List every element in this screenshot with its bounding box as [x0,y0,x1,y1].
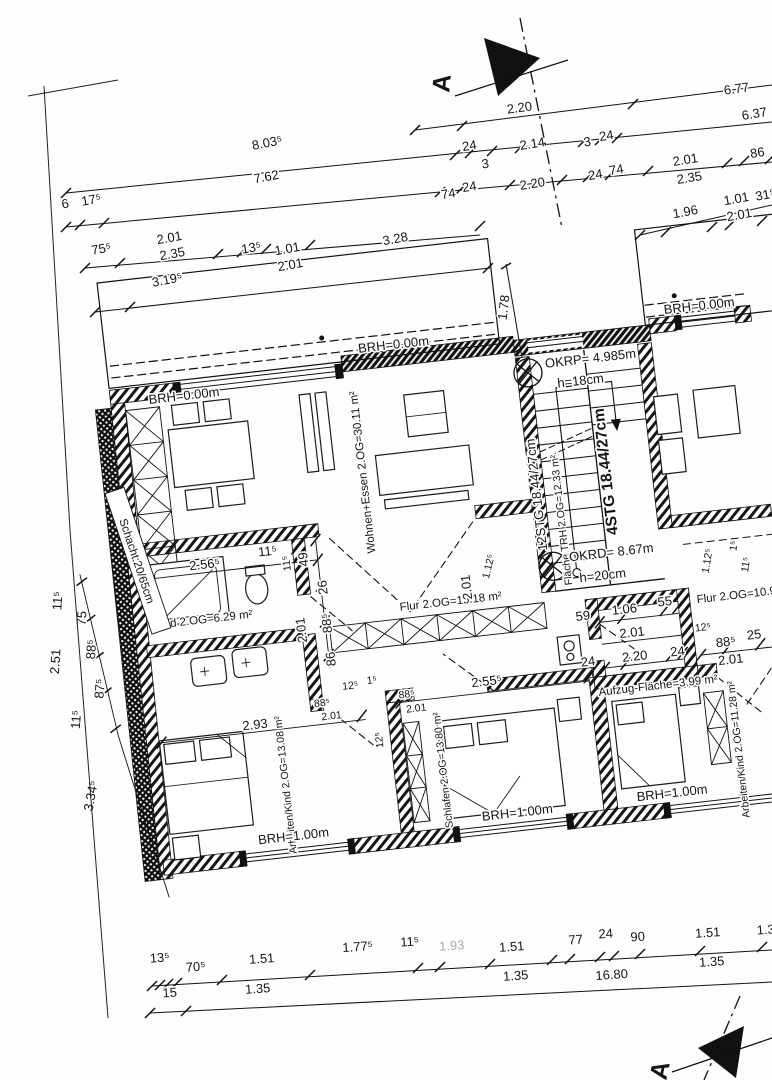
dim: 2.01 [457,574,475,601]
dim: 1.51 [695,924,721,941]
floorplan-drawing: Wohnen+Essen 2.OG=30.11 m² Bad 2.OG=6.29… [0,0,772,1080]
dim: 70⁵ [185,958,206,974]
dim: 90 [630,929,645,945]
dim: 2.01 [292,617,310,644]
dim: 6.37 [741,104,768,123]
dim: 3 [583,134,592,150]
room-label-wohnen: Wohnen+Essen 2.OG=30.11 m² [348,390,378,554]
section-arrow-icon [484,38,540,96]
dim: 24 [587,166,604,183]
table [693,386,740,438]
floorplan-sheet: Wohnen+Essen 2.OG=30.11 m² Bad 2.OG=6.29… [0,0,772,1080]
dim: 59 [575,607,591,624]
dim: 1.35 [699,953,725,970]
dim: 1.78 [495,294,513,321]
dim: 2.93 [242,716,269,734]
sideboard [654,394,682,434]
okrd-label: OKRD= 8.67m [568,540,654,565]
dim: 12⁵ [373,731,387,748]
dim: 55 [657,593,673,610]
dim: 74 [440,185,457,202]
dim: 8.03⁵ [251,132,284,153]
dim: 11⁵ [280,555,294,572]
dim: 1.51 [499,938,525,955]
bed [159,731,256,860]
dim: 6 [60,196,70,212]
dim: 2.01 [276,255,304,274]
dim: 74 [608,161,625,178]
room-label-flur: Flur 2.OG=15.18 m² [399,590,502,614]
dim: 88⁵ [83,639,99,660]
dim: 13⁵ [149,949,170,965]
chair [217,484,245,507]
dim: 1⁵ [727,540,740,552]
dim: 1.77⁵ [342,938,374,955]
double-bed [436,697,591,819]
dining-table [168,421,254,488]
dim: 24 [461,137,478,154]
dim: 88⁵ [318,613,335,634]
dim: 15 [162,985,177,1001]
dim: 3.19⁵ [151,269,184,290]
dim: 49 [295,551,312,567]
dim: 3 [481,156,490,172]
dim: 31⁵ [754,185,772,203]
dim: 2.20 [519,174,546,193]
dim: 24 [461,178,478,195]
okrp-height-label: h=18cm [556,370,604,390]
dim: 1.06 [611,600,638,618]
section-letter: A [645,1059,676,1080]
dim: 26 [314,579,331,595]
dim: 12⁵ [694,621,711,635]
dim: 11⁵ [68,710,84,730]
sofa [375,445,473,495]
dim: 86 [322,651,339,667]
section-letter: A [427,73,456,93]
dim: 2.01 [672,150,699,169]
dim: 12⁵ [342,679,359,693]
dim: 2.01 [405,702,427,716]
stair-run-main-label: 12STG 18.44/27cm [523,438,551,552]
property-lines [28,80,118,1018]
dim: 88⁵ [398,688,415,702]
wc [244,573,269,605]
dim: 2.14 [519,134,546,153]
dim: 77 [568,932,583,948]
dim: 1.3 [756,921,772,937]
section-marker-bottom: A [645,996,772,1080]
bottom-dimension-chains: 13⁵ 70⁵ 1.51 1.35 1.77⁵ 11⁵ 1.93 1.51 1.… [145,921,772,1018]
dim: 2.01 [321,709,343,723]
chair [203,399,231,422]
dim: 88⁵ [715,633,736,650]
dim: 2.35 [676,168,703,187]
okrd-height-label: h=20cm [579,565,627,585]
dim: 2.51 [47,648,64,674]
dim: 11⁵ [257,542,277,559]
dim: 1.35 [503,967,529,984]
dim: 2.01 [717,650,744,668]
dim: 7.62 [252,167,280,187]
dim: 11⁵ [739,556,753,573]
room-label-arbeiten-right: Arbeiten/Kind 2.OG=11.28 m² [725,680,753,819]
dim: 11⁵ [49,591,65,611]
room-label-flur-right: Flur 2.OG=10.98 [696,585,772,607]
dim: 1.51 [249,950,275,967]
bed [611,686,709,789]
sideboard [658,438,686,474]
dim: 24 [669,643,685,660]
dim: 75⁵ [90,239,112,257]
armchair [404,391,448,437]
dim: 24 [598,926,613,942]
dim: 11⁵ [400,933,420,949]
dim: 24 [580,653,596,670]
dim: 1⁵ [366,674,377,687]
dim: 16.80 [595,966,629,983]
dim: 17⁵ [80,190,102,208]
dim: 2.01 [619,623,646,641]
dim: 2.20 [506,98,533,116]
dim: 1.12⁵ [480,553,497,580]
dim: 1.35 [245,980,271,997]
dim: 88⁵ [313,696,330,710]
dim: 25 [746,626,762,643]
dim: 24 [598,127,615,144]
dim: 2.20 [621,647,648,665]
dim: 6.77 [723,79,750,97]
dim: 3.28 [381,229,409,248]
dim: 86 [749,144,766,161]
dim: 1.12⁵ [700,548,716,574]
dim-faint: 1.93 [439,937,465,954]
dim: 87⁵ [91,678,107,699]
dim: 1.96 [671,202,699,221]
dim: 75 [74,611,90,626]
chair [185,487,213,510]
section-arrow-icon [698,1026,744,1078]
chair [171,402,199,425]
dim: 2.01 [725,205,753,224]
